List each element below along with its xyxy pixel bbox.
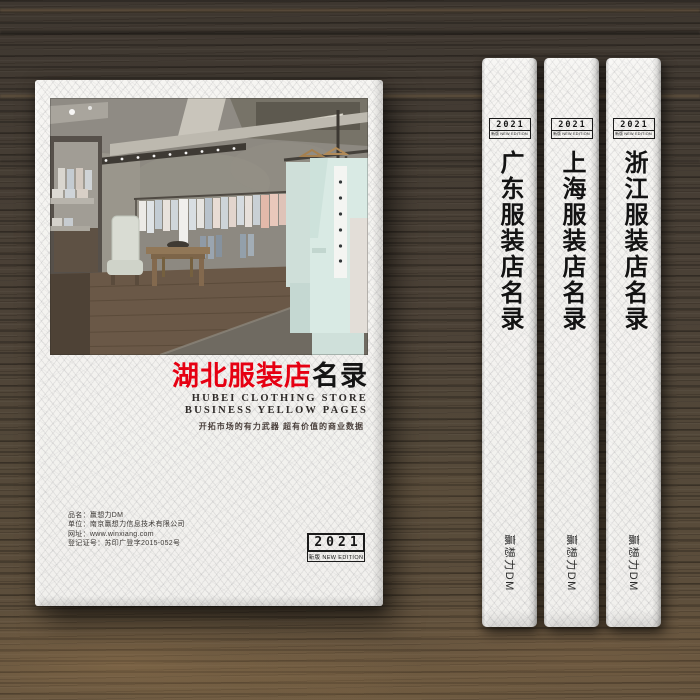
edition-badge: 2021 新版 NEW EDITION (551, 118, 593, 139)
spine-brand-text: 赢想力DM (502, 534, 518, 592)
cover-subtitle-english: HUBEI CLOTHING STORE BUSINESS YELLOW PAG… (185, 393, 368, 416)
edition-badge-label: 新版 NEW EDITION (551, 131, 593, 139)
cover-subtitle-line2: BUSINESS YELLOW PAGES (185, 405, 368, 417)
book-spine-shanghai: 2021 新版 NEW EDITION 上海服装店名录 赢想力DM (544, 58, 599, 627)
edition-badge: 2021 新版 NEW EDITION (489, 118, 531, 139)
info-product-name: 品名：赢想力DM (68, 511, 185, 520)
spine-title: 广东服装店名录 (492, 150, 527, 332)
info-registration: 登记证号：苏印广登字2015-052号 (68, 539, 185, 548)
edition-badge: 2021 新版 NEW EDITION (613, 118, 655, 139)
cover-title-region: 湖北服装店 (172, 361, 312, 391)
cover-tagline: 开拓市场的有力武器 超有价值的商业数据 (199, 421, 364, 432)
catalog-front-cover: 湖北服装店名录 HUBEI CLOTHING STORE BUSINESS YE… (35, 80, 383, 606)
wood-grain-streak (0, 9, 700, 12)
book-spine-zhejiang: 2021 新版 NEW EDITION 浙江服装店名录 赢想力DM (606, 58, 661, 627)
info-company: 单位：南京赢想力信息技术有限公司 (68, 520, 185, 529)
edition-badge-label: 新版 NEW EDITION (489, 131, 531, 139)
edition-badge-year: 2021 (489, 118, 531, 131)
spine-title: 浙江服装店名录 (616, 150, 651, 332)
cover-publisher-info: 品名：赢想力DM 单位：南京赢想力信息技术有限公司 网址：www.winxian… (68, 511, 185, 548)
cover-title: 湖北服装店名录 (172, 361, 368, 391)
cover-subtitle-line1: HUBEI CLOTHING STORE (185, 393, 368, 405)
spine-brand-text: 赢想力DM (564, 534, 580, 592)
cover-title-suffix: 名录 (312, 361, 368, 391)
spine-brand: 赢想力DM (606, 513, 661, 613)
edition-badge-year: 2021 (307, 533, 365, 552)
cover-photo-clothing-store (50, 98, 368, 355)
edition-badge-label: 新版 NEW EDITION (613, 131, 655, 139)
spine-brand: 赢想力DM (544, 513, 599, 613)
edition-badge-year: 2021 (613, 118, 655, 131)
wood-grain-streak (0, 31, 700, 34)
info-website: 网址：www.winxiang.com (68, 530, 185, 539)
edition-badge: 2021 新版 NEW EDITION (307, 533, 365, 562)
spine-brand-text: 赢想力DM (626, 534, 642, 592)
mirror (50, 136, 102, 278)
book-spine-guangdong: 2021 新版 NEW EDITION 广东服装店名录 赢想力DM (482, 58, 537, 627)
edition-badge-label: 新版 NEW EDITION (307, 552, 365, 562)
armchair (107, 216, 143, 285)
spine-brand: 赢想力DM (482, 513, 537, 613)
edition-badge-year: 2021 (551, 118, 593, 131)
spine-title: 上海服装店名录 (554, 150, 589, 332)
